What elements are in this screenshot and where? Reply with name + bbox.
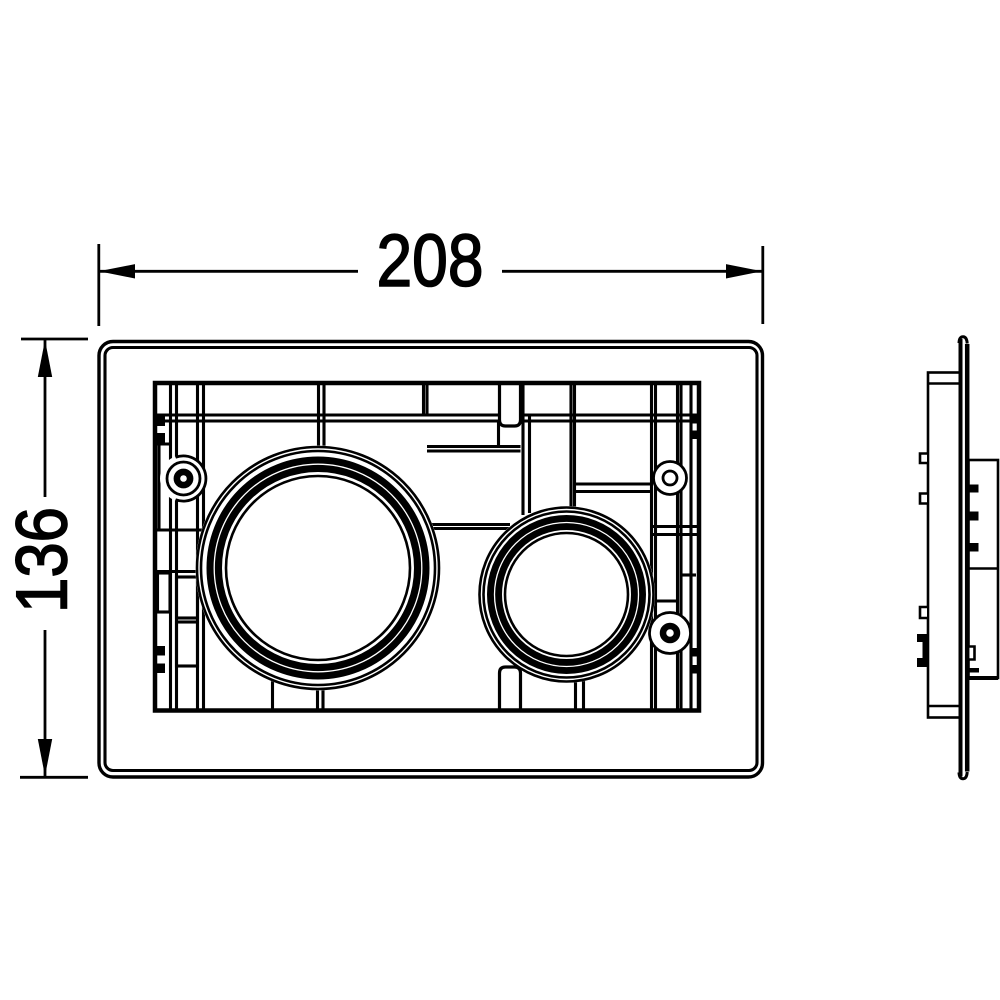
svg-text:208: 208 <box>377 219 484 302</box>
svg-text:136: 136 <box>3 507 83 613</box>
